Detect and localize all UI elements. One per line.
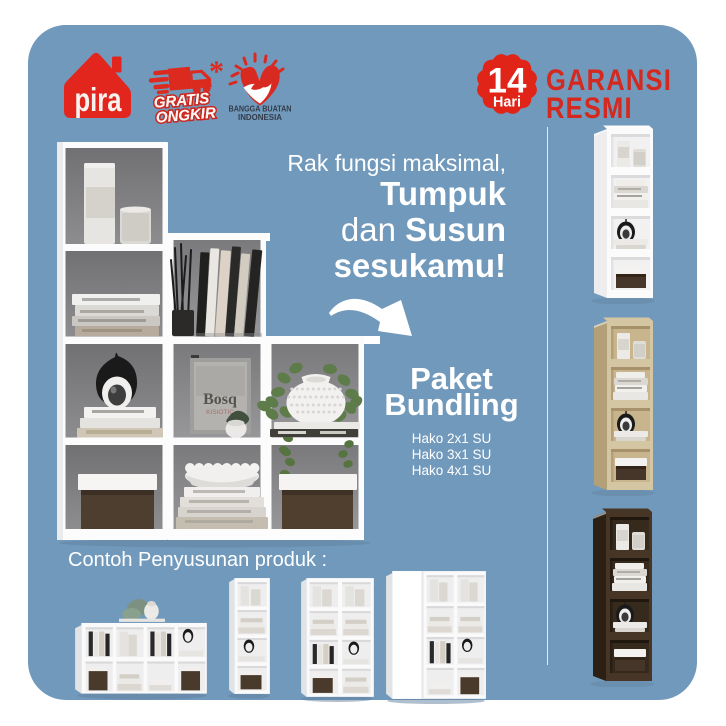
svg-text:Bosq: Bosq bbox=[203, 391, 237, 408]
svg-text:Hari: Hari bbox=[493, 95, 521, 111]
svg-text:KISIOTIC: KISIOTIC bbox=[206, 409, 234, 416]
svg-text:*: * bbox=[209, 55, 224, 88]
svg-text:INDONESIA: INDONESIA bbox=[238, 112, 282, 122]
svg-text:pira: pira bbox=[75, 81, 122, 118]
